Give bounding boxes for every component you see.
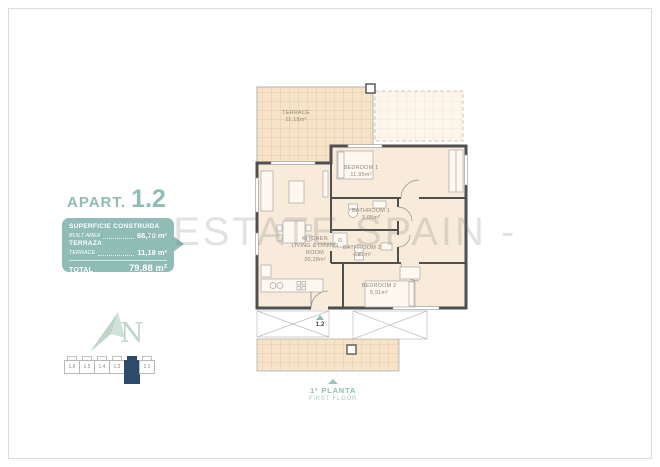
area-info-box: SUPERFICIE CONSTRUIDA BUILT AREA 68,70 m… xyxy=(62,218,174,272)
key-plan-unit-1-3: 1.3 xyxy=(109,356,125,374)
open-terrace-dashed-area xyxy=(375,91,463,141)
entrance-arrow-icon xyxy=(316,315,324,320)
total-area-value: 79,88 m² xyxy=(129,263,167,274)
floor-name-es: 1ª PLANTA xyxy=(300,386,366,395)
built-area-value: 68,70 m² xyxy=(137,231,167,240)
floor-plan-page: - ESTATE SPAIN - APART. 1.2 SUPERFICIE C… xyxy=(0,0,660,467)
floor-name-en: FIRST FLOOR xyxy=(300,396,366,402)
info-box-divider xyxy=(69,260,167,261)
built-area-label-en: BUILT AREA xyxy=(69,233,100,240)
floor-indicator-arrow-icon xyxy=(328,379,338,384)
room-label-bedroom1: BEDROOM 1 11,95m² xyxy=(331,165,391,179)
built-area-label-es: SUPERFICIE CONSTRUIDA xyxy=(69,223,167,231)
floor-plan-drawing xyxy=(253,83,471,375)
total-label: TOTAL xyxy=(69,267,93,274)
lower-terrace-area xyxy=(257,339,399,371)
pillar xyxy=(347,345,356,354)
dotted-leader xyxy=(103,238,133,239)
key-plan-unit-1-1: 1.1 xyxy=(139,356,155,374)
key-plan-unit-1-2-highlighted: 1.2 xyxy=(124,356,140,384)
room-label-living: KITCHEN LIVING & DINING ROOM 30,28m² xyxy=(285,236,345,265)
info-box-pointer-arrow-icon xyxy=(173,236,184,252)
north-compass-icon: N xyxy=(88,310,146,354)
entrance-marker: 1.2 xyxy=(308,315,332,328)
terrace-label-en: TERRACE xyxy=(69,250,95,257)
entrance-unit-label: 1.2 xyxy=(308,321,332,328)
dotted-leader xyxy=(96,272,126,273)
room-label-terrace: TERRACE 11,18m² xyxy=(266,110,326,124)
key-plan-unit-1-5: 1.5 xyxy=(79,356,95,374)
building-key-plan: 1.6 1.5 1.4 1.3 1.2 1.1 xyxy=(64,356,154,384)
apartment-title-number: 1.2 xyxy=(131,185,166,214)
dotted-leader xyxy=(98,255,134,256)
terrace-area-value: 11,18 m² xyxy=(137,248,167,257)
apartment-title: APART. 1.2 xyxy=(67,185,166,214)
key-plan-unit-1-4: 1.4 xyxy=(94,356,110,374)
svg-text:N: N xyxy=(120,318,144,349)
void-hatch-right xyxy=(353,311,427,339)
key-plan-unit-1-6: 1.6 xyxy=(64,356,80,374)
room-label-bathroom1: BATHROOM 1 3,05m² xyxy=(341,208,401,222)
apartment-title-prefix: APART. xyxy=(67,194,126,211)
room-label-bedroom2: BEDROOM 2 9,91m² xyxy=(349,283,409,297)
terrace-label-es: TERRAZA xyxy=(69,240,167,248)
floor-indicator: 1ª PLANTA FIRST FLOOR xyxy=(300,379,366,402)
